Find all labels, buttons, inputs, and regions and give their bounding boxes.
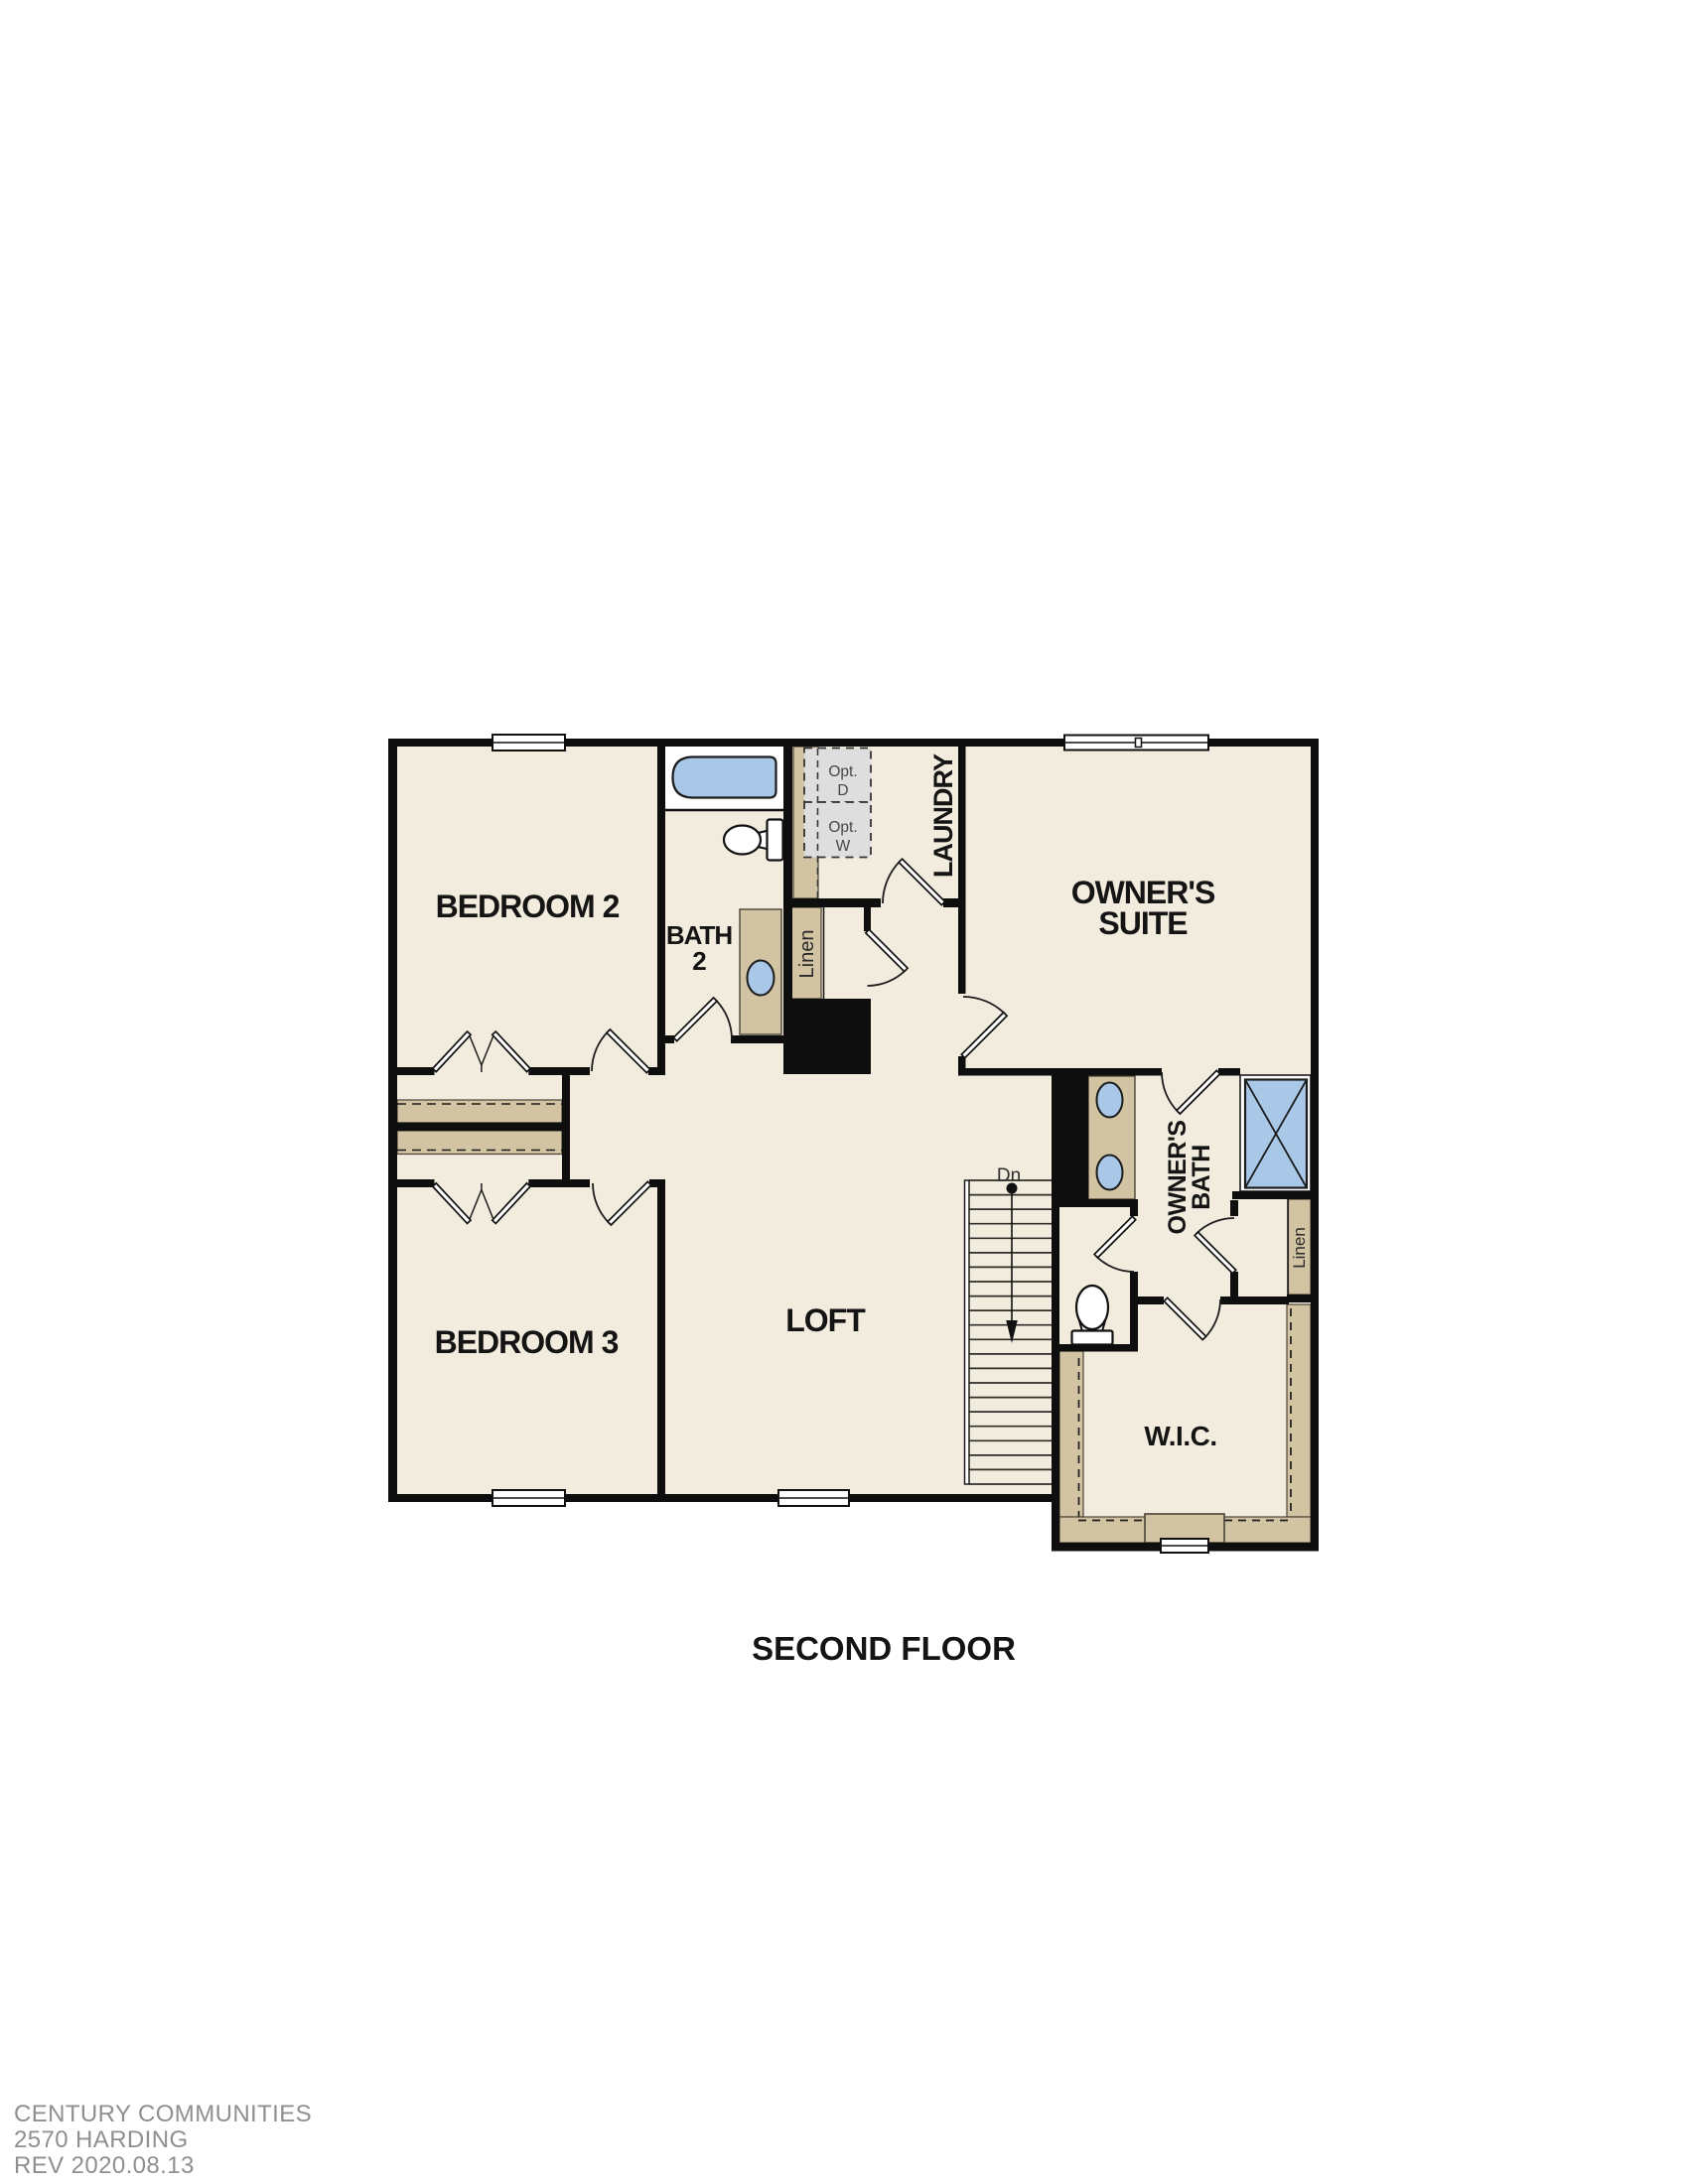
svg-text:BATH: BATH: [1188, 1145, 1215, 1210]
svg-text:BEDROOM 3: BEDROOM 3: [435, 1324, 619, 1360]
svg-text:W: W: [836, 838, 851, 855]
svg-text:Opt.: Opt.: [828, 819, 857, 836]
svg-text:2: 2: [692, 946, 706, 976]
svg-text:W.I.C.: W.I.C.: [1144, 1421, 1216, 1451]
svg-text:BEDROOM 2: BEDROOM 2: [436, 888, 620, 924]
svg-text:LAUNDRY: LAUNDRY: [928, 753, 958, 878]
svg-text:SECOND FLOOR: SECOND FLOOR: [752, 1630, 1016, 1667]
svg-text:Linen: Linen: [796, 930, 818, 979]
svg-text:Linen: Linen: [1290, 1227, 1309, 1269]
svg-text:SUITE: SUITE: [1098, 905, 1188, 941]
svg-text:CENTURY COMMUNITIES: CENTURY COMMUNITIES: [14, 2101, 312, 2127]
svg-text:REV 2020.08.13: REV 2020.08.13: [14, 2152, 195, 2179]
svg-text:Dn: Dn: [997, 1165, 1021, 1186]
svg-text:D: D: [837, 782, 848, 799]
svg-text:LOFT: LOFT: [785, 1302, 866, 1338]
svg-text:2570 HARDING: 2570 HARDING: [14, 2126, 189, 2153]
svg-text:Opt.: Opt.: [828, 763, 857, 780]
